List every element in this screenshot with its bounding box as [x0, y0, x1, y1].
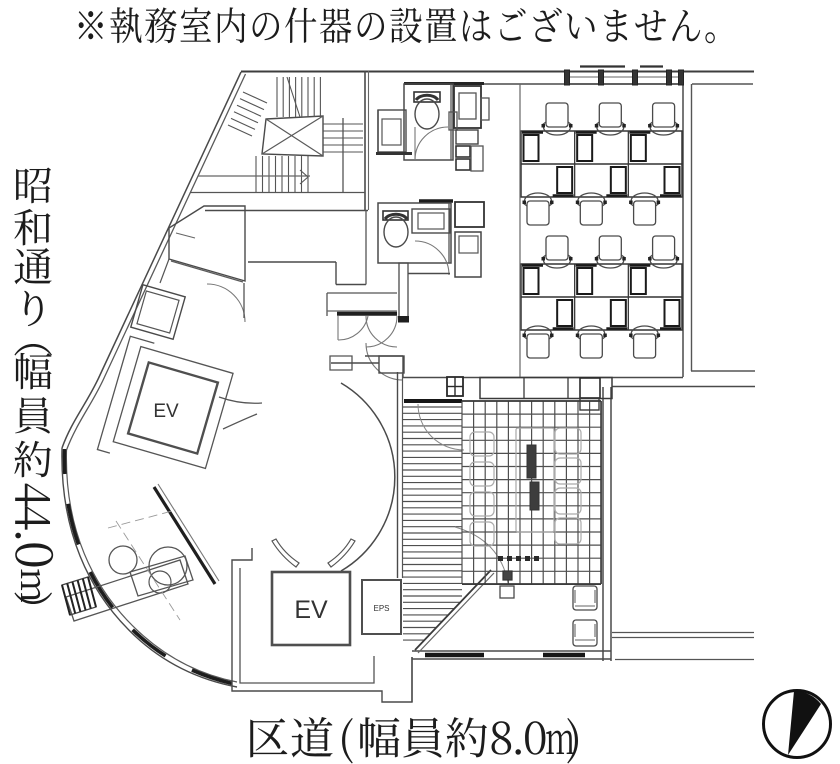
- svg-text:EPS: EPS: [373, 604, 389, 613]
- svg-text:EV: EV: [153, 401, 179, 422]
- svg-text:EV: EV: [294, 596, 328, 624]
